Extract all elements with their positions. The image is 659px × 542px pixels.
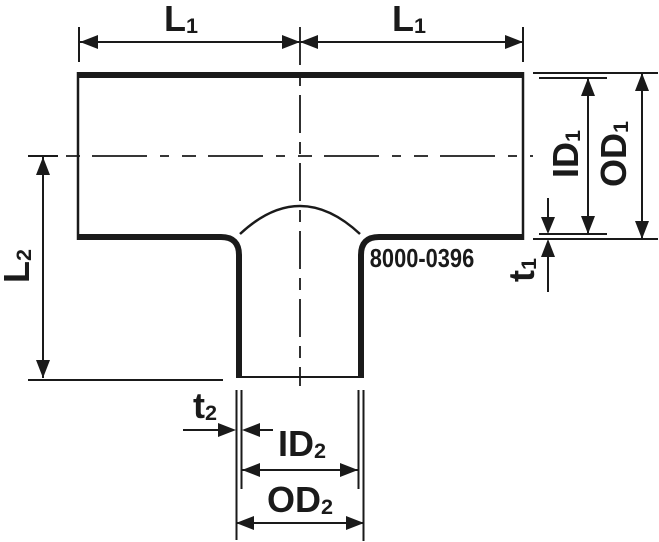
dim-label-l1-right: L1 [392,1,426,37]
part-number: 8000-0396 [370,245,474,271]
id1-text: ID [545,142,586,178]
t1-subscript: 1 [516,258,541,270]
dim-label-od2: OD2 [267,482,333,518]
l2-subscript: 2 [11,249,36,261]
id2-text: ID [278,423,314,464]
l1-left-subscript: 1 [186,13,198,38]
dimension-l2 [28,156,223,380]
run-bottom-left-and-branch-left-wall [77,237,239,378]
t2-text: t [193,385,205,426]
od1-text: OD [593,133,634,187]
dimension-t1 [541,198,555,292]
id2-subscript: 2 [314,438,326,463]
dim-label-l2: L2 [0,249,35,283]
t1-text: t [501,270,542,282]
od2-subscript: 2 [321,494,333,519]
l1-right-subscript: 1 [414,13,426,38]
dim-label-t2: t2 [193,388,217,424]
l1-right-text: L [392,0,414,39]
drawing-canvas [0,0,659,542]
t2-arrowheads [218,423,260,437]
l1-left-text: L [164,0,186,39]
t1-arrowheads [541,217,555,257]
l2-text: L [0,261,37,283]
t2-subscript: 2 [205,400,217,425]
od2-text: OD [267,479,321,520]
od1-subscript: 1 [608,121,633,133]
tee-technical-drawing: L1 L1 L2 ID1 OD1 t1 t2 ID2 OD2 8000-0396 [0,0,659,542]
dim-label-t1: t1 [504,258,540,282]
dim-label-id1: ID1 [548,130,584,178]
dim-label-l1-left: L1 [164,1,198,37]
dim-label-od1: OD1 [596,121,632,187]
dim-label-id2: ID2 [278,426,326,462]
id1-subscript: 1 [560,130,585,142]
dimension-id2 [242,463,358,477]
